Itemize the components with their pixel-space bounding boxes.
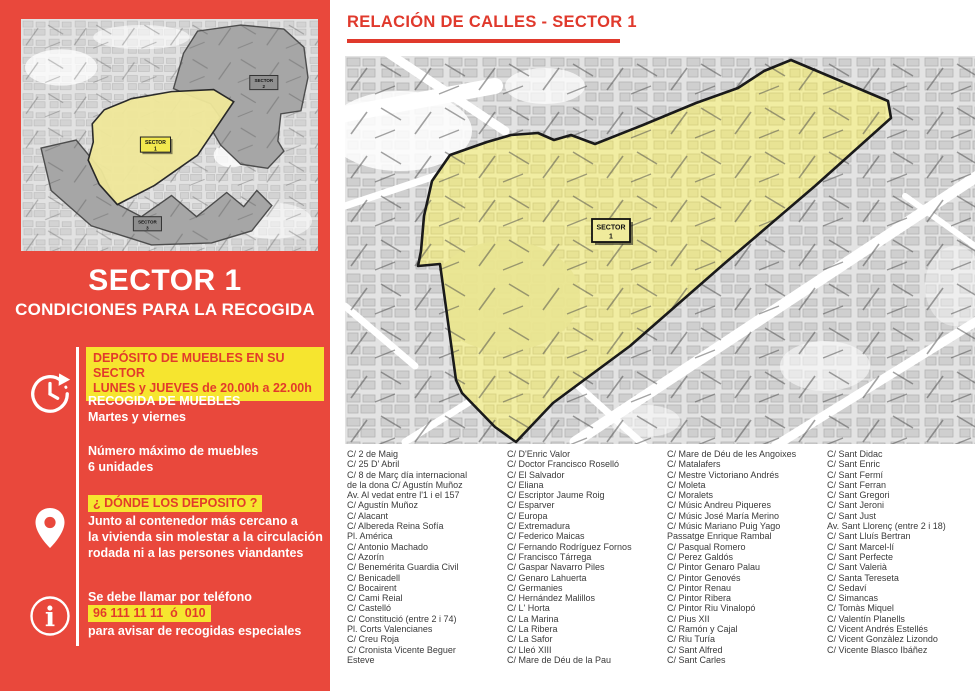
street-item: C/ Sant Just (827, 511, 976, 521)
where-line3: rodada ni a las persones viandantes (88, 545, 324, 561)
sector1-street-map: SECTOR 1 (345, 56, 975, 444)
street-item: C/ Sant Didac (827, 449, 976, 459)
minimap-sector2-label: SECTOR 2 (250, 75, 278, 89)
where-line1: Junto al contenedor más cercano a (88, 513, 324, 529)
sector-subtitle: CONDICIONES PARA LA RECOGIDA (0, 300, 330, 320)
street-item: C/ Valentín Planells (827, 614, 976, 624)
max-items-section: Número máximo de muebles 6 unidades (88, 443, 324, 475)
street-item: C/ Riu Turía (667, 634, 827, 644)
minimap-sector1-label: SECTOR 1 (140, 137, 172, 154)
street-item: C/ Alacant (347, 511, 507, 521)
where-section: ¿ DÓNDE LOS DEPOSITO ? Junto al contened… (88, 495, 324, 561)
street-item: C/ Fernando Rodríguez Fornos (507, 542, 667, 552)
street-item: C/ Sant Enric (827, 459, 976, 469)
street-item: C/ Simancas (827, 593, 976, 603)
street-item: C/ El Salvador (507, 470, 667, 480)
street-item: C/ Europa (507, 511, 667, 521)
street-item: C/ Constitució (entre 2 i 74) (347, 614, 507, 624)
sector-title: SECTOR 1 (0, 264, 330, 298)
street-item: C/ 25 D' Abril (347, 459, 507, 469)
street-item: C/ Hernández Malillos (507, 593, 667, 603)
street-item: C/ Tomàs Miquel (827, 603, 976, 613)
street-item: C/ 8 de Març día internacional (347, 470, 507, 480)
street-item: C/ La Marina (507, 614, 667, 624)
street-item: C/ Mestre Victoriano Andrés (667, 470, 827, 480)
street-item: C/ Federico Maicas (507, 531, 667, 541)
info-icon: i (29, 595, 71, 637)
street-item: C/ Vicente Blasco Ibáñez (827, 645, 976, 655)
phone-line1: Se debe llamar por teléfono (88, 589, 324, 605)
street-item: C/ La Safor (507, 634, 667, 644)
street-item: Av. Al vedat entre l'1 i el 157 (347, 490, 507, 500)
svg-text:1: 1 (154, 147, 157, 153)
pickup-section: RECOGIDA DE MUEBLES Martes y viernes (88, 393, 324, 425)
street-item: C/ Sant Ferran (827, 480, 976, 490)
pickup-heading: RECOGIDA DE MUEBLES (88, 393, 324, 409)
street-item: C/ Pintor Riu Vinalopó (667, 603, 827, 613)
street-item: C/ Músic Andreu Piqueres (667, 500, 827, 510)
street-item: C/ D'Enric Valor (507, 449, 667, 459)
street-item: C/ Antonio Machado (347, 542, 507, 552)
max-items-label: Número máximo de muebles (88, 443, 324, 459)
street-item: C/ Francisco Tárrega (507, 552, 667, 562)
street-item: C/ Azorín (347, 552, 507, 562)
street-item: C/ Sant Perfecte (827, 552, 976, 562)
street-item: Esteve (347, 655, 507, 665)
street-item: C/ Cami Reial (347, 593, 507, 603)
city-sectors-minimap: SECTOR 1 SECTOR 2 SECTOR 3 (21, 19, 318, 251)
street-item: Pl. Corts Valencianes (347, 624, 507, 634)
street-item: C/ Sant Alfred (667, 645, 827, 655)
street-item: C/ Doctor Francisco Roselló (507, 459, 667, 469)
street-item: C/ Pintor Genovés (667, 573, 827, 583)
street-item: C/ Ramón y Cajal (667, 624, 827, 634)
street-item: C/ Pintor Ribera (667, 593, 827, 603)
page-title: RELACIÓN DE CALLES - SECTOR 1 (347, 13, 637, 32)
title-underline (347, 39, 620, 43)
street-item: C/ La Ribera (507, 624, 667, 634)
street-item: C/ Sant Lluís Bertran (827, 531, 976, 541)
svg-text:SECTOR: SECTOR (145, 140, 166, 146)
street-item: C/ Músic Mariano Puig Yago (667, 521, 827, 531)
street-column-2: C/ D'Enric ValorC/ Doctor Francisco Rose… (507, 449, 667, 665)
street-item: C/ Sedaví (827, 583, 976, 593)
street-item: C/ Vicent Andrés Estellés (827, 624, 976, 634)
street-item: C/ Sant Valerià (827, 562, 976, 572)
sidebar: SECTOR 1 SECTOR 2 SECTOR 3 SECTOR 1 COND… (0, 0, 330, 691)
street-item: C/ Benemérita Guardia Civil (347, 562, 507, 572)
street-item: C/ Vicent Gonzàlez Lizondo (827, 634, 976, 644)
where-heading: ¿ DÓNDE LOS DEPOSITO ? (88, 495, 262, 512)
max-items-value: 6 unidades (88, 459, 324, 475)
svg-text:1: 1 (609, 234, 613, 241)
street-item: Passatge Enrique Rambal (667, 531, 827, 541)
location-pin-icon (26, 505, 74, 553)
furniture-collection-poster: SECTOR 1 SECTOR 2 SECTOR 3 SECTOR 1 COND… (0, 0, 976, 691)
svg-text:SECTOR: SECTOR (138, 219, 157, 224)
street-item: C/ Sant Gregori (827, 490, 976, 500)
street-item: C/ Pius XII (667, 614, 827, 624)
street-column-1: C/ 2 de MaigC/ 25 D' AbrilC/ 8 de Març d… (347, 449, 507, 665)
street-item: C/ Genaro Lahuerta (507, 573, 667, 583)
minimap-sector3-label: SECTOR 3 (133, 217, 161, 231)
street-item: C/ Sant Fermí (827, 470, 976, 480)
street-list: C/ 2 de MaigC/ 25 D' AbrilC/ 8 de Març d… (347, 449, 976, 665)
street-item: C/ Sant Marcel-lí (827, 542, 976, 552)
street-item: C/ Pasqual Romero (667, 542, 827, 552)
sector1-map-svg: SECTOR 1 (345, 56, 975, 444)
street-item: C/ Benicadell (347, 573, 507, 583)
vertical-divider (76, 347, 79, 646)
street-item: C/ Pintor Genaro Palau (667, 562, 827, 572)
svg-text:i: i (45, 602, 55, 633)
street-item: C/ Eliana (507, 480, 667, 490)
street-item: C/ Lleó XIII (507, 645, 667, 655)
street-item: C/ Músic José María Merino (667, 511, 827, 521)
clock-icon (27, 371, 73, 417)
street-item: C/ Mare de Déu de la Pau (507, 655, 667, 665)
street-item: C/ Pintor Renau (667, 583, 827, 593)
where-line2: la vivienda sin molestar a la circulació… (88, 529, 324, 545)
street-item: C/ Agustín Muñoz (347, 500, 507, 510)
street-item: C/ Extremadura (507, 521, 667, 531)
street-item: Pl. América (347, 531, 507, 541)
street-item: C/ Castelló (347, 603, 507, 613)
street-item: C/ L' Horta (507, 603, 667, 613)
street-item: C/ Cronista Vicente Beguer (347, 645, 507, 655)
street-item: C/ Albereda Reina Sofía (347, 521, 507, 531)
phone-line3: para avisar de recogidas especiales (88, 623, 324, 639)
minimap-svg: SECTOR 1 SECTOR 2 SECTOR 3 (21, 19, 318, 251)
street-item: C/ Perez Galdós (667, 552, 827, 562)
street-column-4: C/ Sant DidacC/ Sant EnricC/ Sant FermíC… (827, 449, 976, 665)
street-item: C/ Sant Carles (667, 655, 827, 665)
street-item: C/ 2 de Maig (347, 449, 507, 459)
street-item: C/ Gaspar Navarro Piles (507, 562, 667, 572)
street-item: Av. Sant Llorenç (entre 2 i 18) (827, 521, 976, 531)
street-item: C/ Sant Jeroni (827, 500, 976, 510)
street-item: C/ Mare de Déu de les Angoixes (667, 449, 827, 459)
deposit-line1: DEPÓSITO DE MUEBLES EN SU SECTOR (93, 351, 317, 381)
street-item: C/ Moleta (667, 480, 827, 490)
street-item: C/ Germanies (507, 583, 667, 593)
street-item: de la dona C/ Agustín Muñoz (347, 480, 507, 490)
street-item: C/ Creu Roja (347, 634, 507, 644)
phone-section: Se debe llamar por teléfono 96 111 11 11… (88, 589, 324, 639)
street-item: C/ Matalafers (667, 459, 827, 469)
phone-numbers: 96 111 11 11 ó 010 (88, 605, 211, 622)
street-column-3: C/ Mare de Déu de les AngoixesC/ Matalaf… (667, 449, 827, 665)
street-item: C/ Moralets (667, 490, 827, 500)
street-item: C/ Bocairent (347, 583, 507, 593)
street-item: C/ Esparver (507, 500, 667, 510)
street-item: C/ Santa Tereseta (827, 573, 976, 583)
svg-text:SECTOR: SECTOR (596, 225, 625, 232)
svg-text:SECTOR: SECTOR (254, 78, 273, 83)
sector1-map-label: SECTOR 1 (592, 219, 633, 245)
pickup-days: Martes y viernes (88, 409, 324, 425)
street-item: C/ Escriptor Jaume Roig (507, 490, 667, 500)
